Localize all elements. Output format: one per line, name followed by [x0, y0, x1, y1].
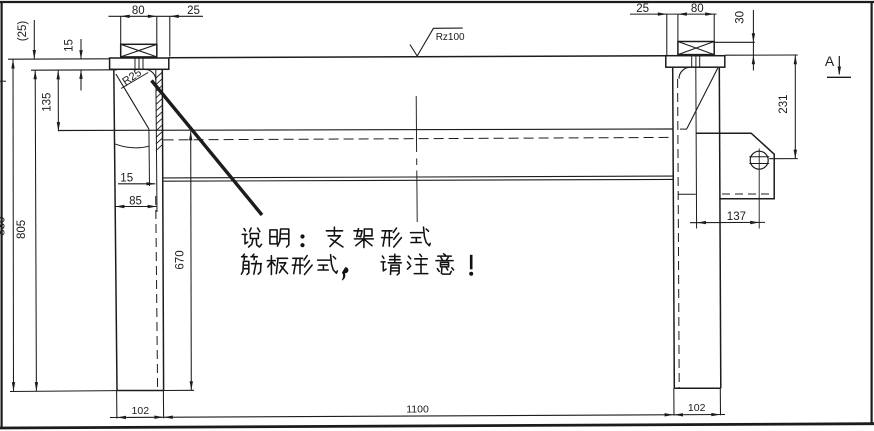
svg-text:15: 15	[120, 172, 133, 184]
svg-text:1100: 1100	[406, 403, 429, 415]
svg-text:80: 80	[691, 3, 704, 15]
svg-text:805: 805	[16, 220, 28, 239]
svg-text:830: 830	[0, 217, 8, 236]
svg-text:102: 102	[688, 402, 706, 414]
svg-text:25: 25	[187, 5, 200, 17]
svg-text:15: 15	[64, 39, 76, 52]
svg-text:A: A	[825, 53, 835, 69]
svg-text:137: 137	[727, 211, 746, 223]
svg-text:80: 80	[132, 5, 145, 17]
svg-text:30: 30	[735, 11, 747, 24]
svg-text:102: 102	[132, 405, 150, 417]
svg-text:Rz100: Rz100	[436, 32, 465, 43]
svg-text:25: 25	[636, 3, 649, 15]
svg-text:(25): (25)	[17, 21, 29, 42]
svg-text:135: 135	[41, 93, 53, 112]
svg-text:231: 231	[778, 95, 790, 114]
svg-text:670: 670	[174, 250, 186, 269]
svg-text:85: 85	[129, 196, 142, 208]
